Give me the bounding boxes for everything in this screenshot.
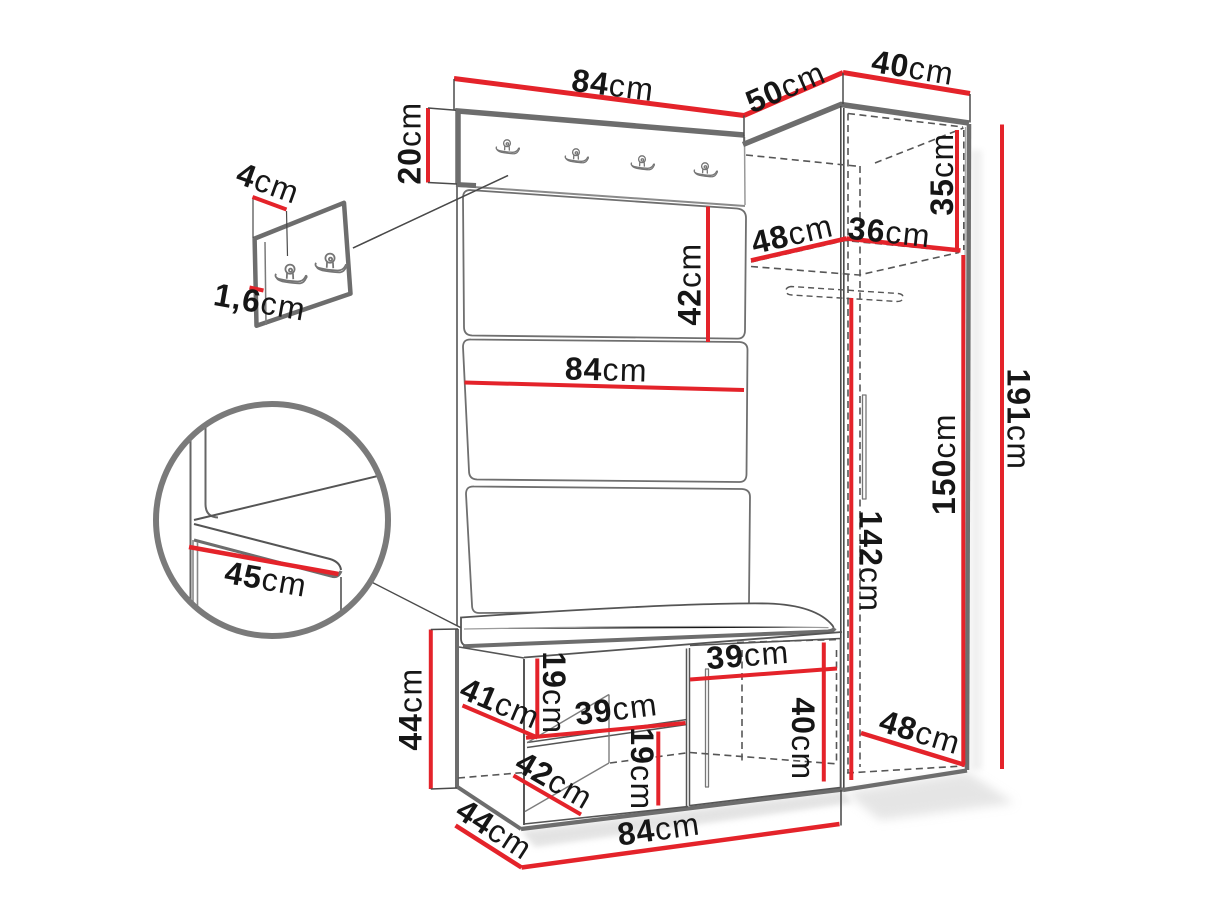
svg-text:40cm: 40cm [785,697,821,780]
svg-text:42cm: 42cm [509,744,599,817]
svg-text:44cm: 44cm [450,791,539,867]
svg-text:40cm: 40cm [869,43,957,92]
svg-text:20cm: 20cm [392,101,428,184]
svg-text:84cm: 84cm [564,350,648,388]
svg-text:44cm: 44cm [393,667,429,750]
svg-text:142cm: 142cm [853,510,889,612]
svg-text:41cm: 41cm [455,670,546,736]
svg-text:19cm: 19cm [536,651,572,734]
svg-text:42cm: 42cm [672,242,708,325]
svg-text:19cm: 19cm [624,727,660,810]
svg-text:150cm: 150cm [926,413,962,515]
svg-text:39cm: 39cm [705,634,791,676]
svg-text:50cm: 50cm [740,54,831,120]
svg-text:84cm: 84cm [570,62,657,108]
svg-text:191cm: 191cm [1001,368,1037,470]
svg-text:35cm: 35cm [924,132,960,215]
